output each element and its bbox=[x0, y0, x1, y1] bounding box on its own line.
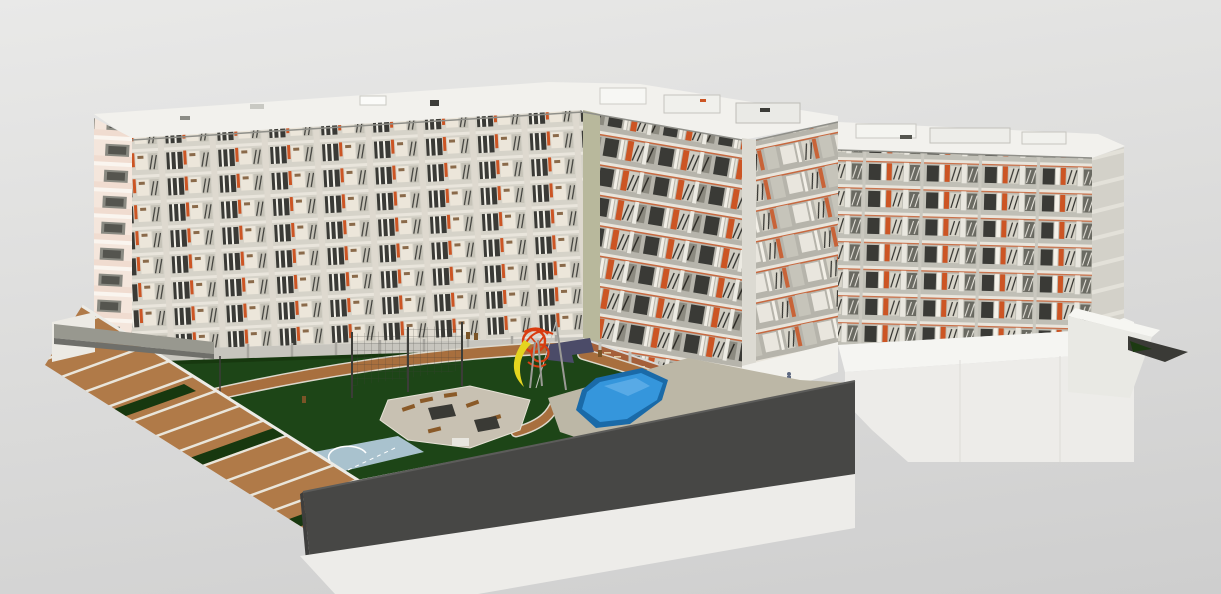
block-junction-strip bbox=[583, 110, 600, 342]
sandbox bbox=[452, 438, 469, 446]
right-block-facade bbox=[838, 150, 1092, 345]
right-block-end-wall bbox=[1092, 147, 1124, 330]
left-block-facade bbox=[132, 110, 583, 350]
model-render: 0 7 bbox=[0, 0, 1221, 594]
left-apartment-block bbox=[94, 82, 612, 350]
center-block-corner-pier bbox=[742, 138, 756, 394]
left-block-end-wall bbox=[94, 118, 132, 348]
viewport-3d[interactable]: 0 7 bbox=[0, 0, 1221, 594]
